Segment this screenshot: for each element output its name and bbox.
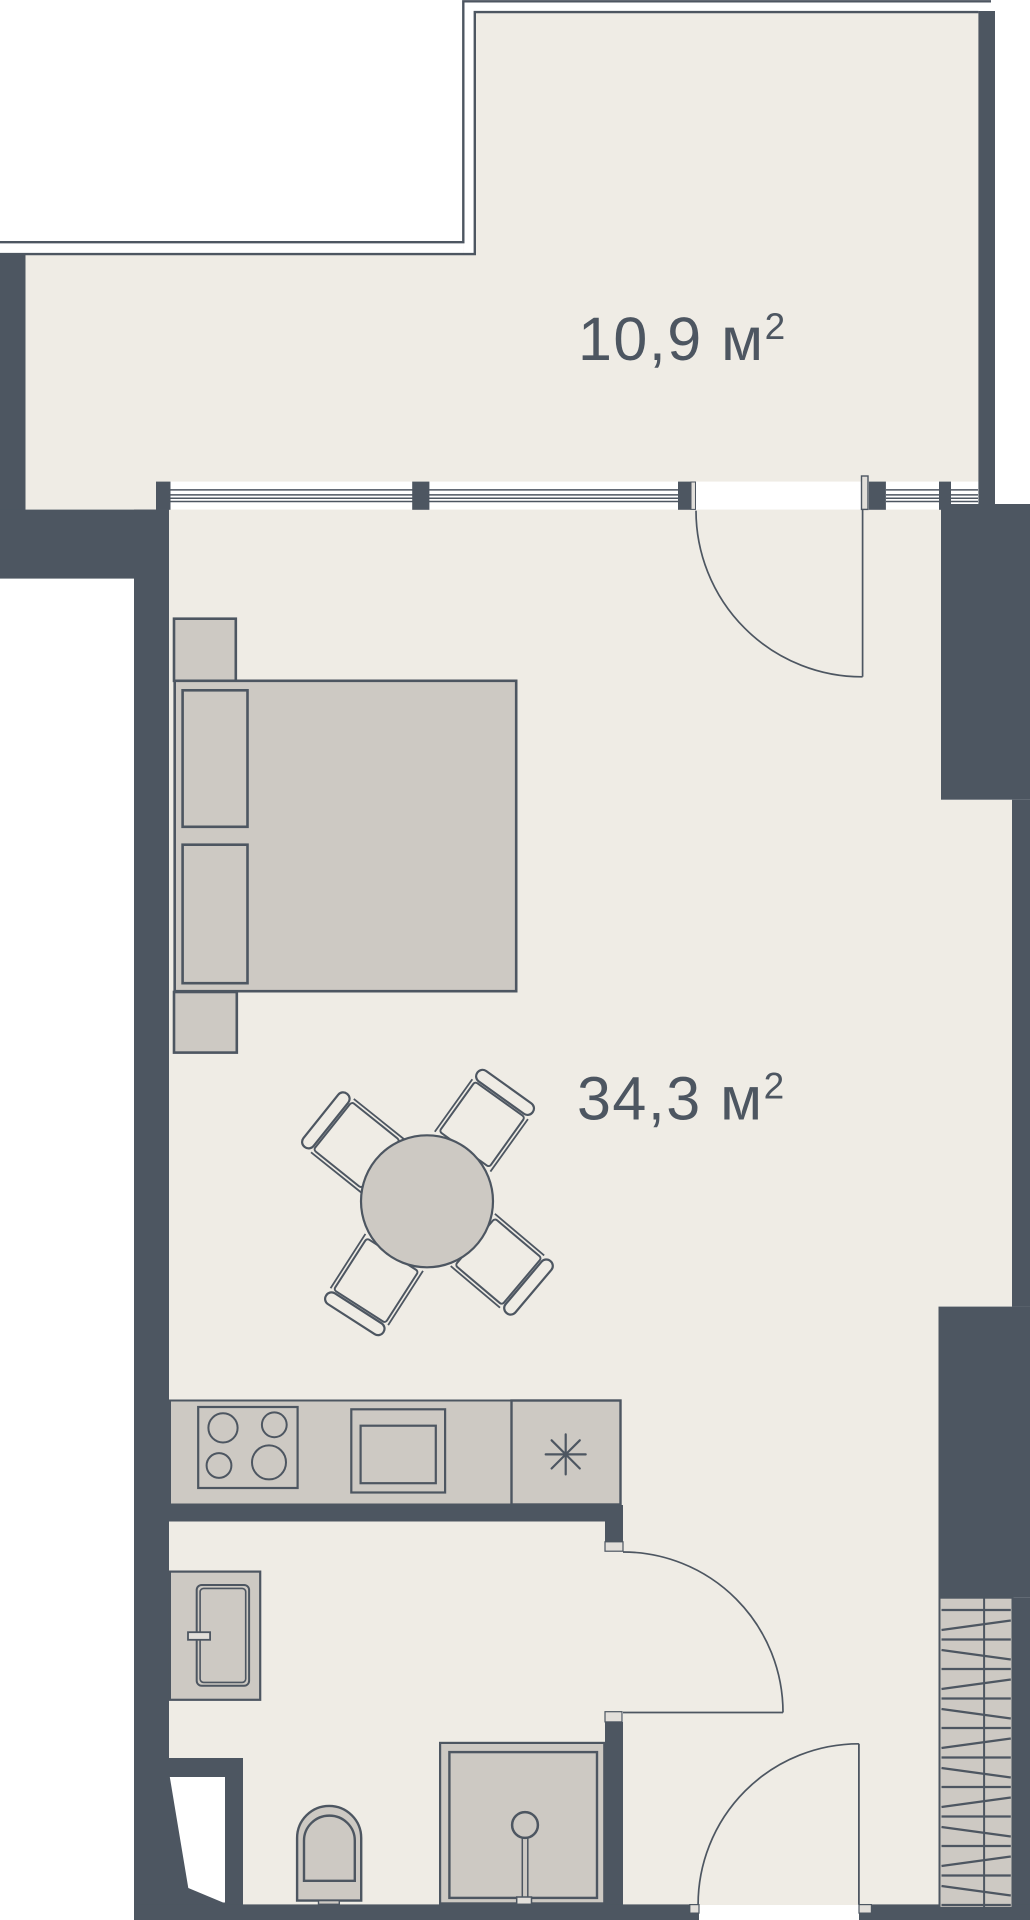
svg-text:34,3 м2: 34,3 м2 bbox=[577, 1065, 786, 1133]
svg-text:10,9 м2: 10,9 м2 bbox=[578, 305, 787, 373]
